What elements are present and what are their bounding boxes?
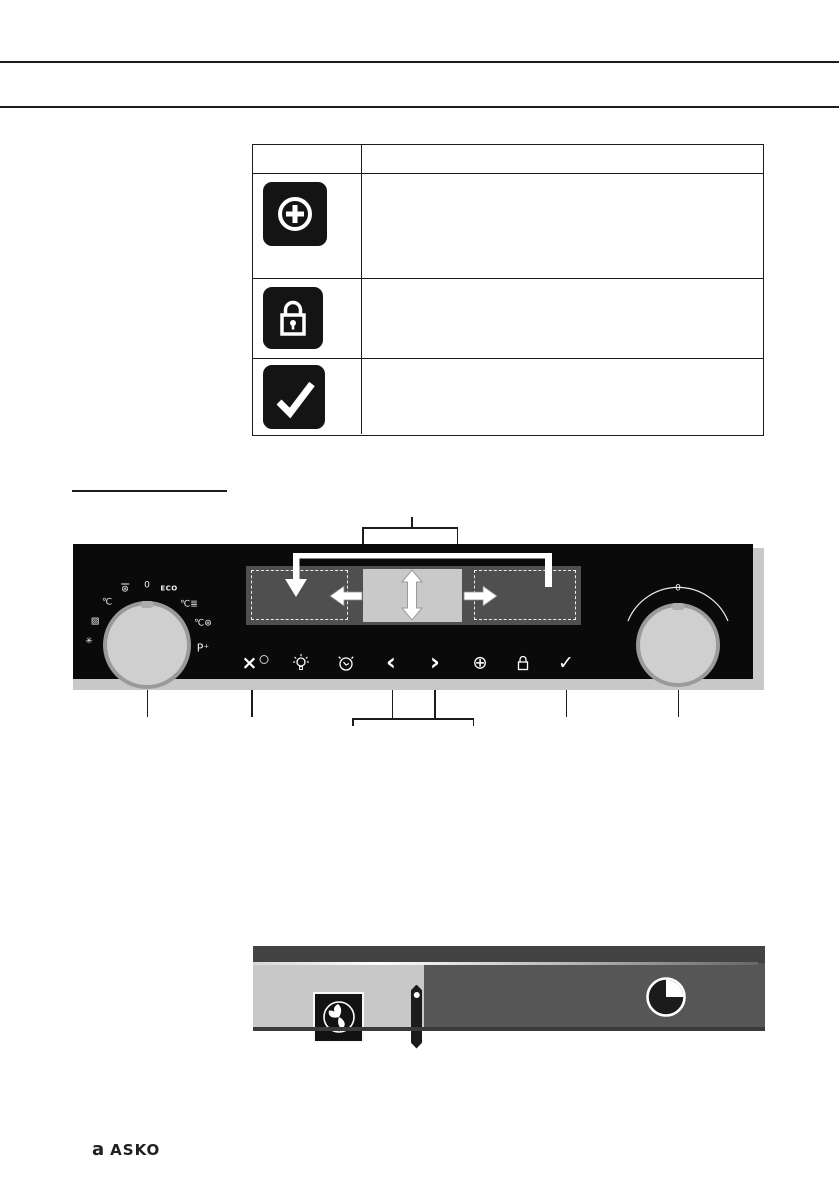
callout-bracket-leg xyxy=(457,527,459,544)
display-navigation-arrows xyxy=(240,548,600,628)
hot-air-levels-symbol: ℃≣ xyxy=(180,601,198,610)
temp-symbol: ℃ xyxy=(102,599,112,608)
callout-bracket-bottom xyxy=(352,718,474,720)
right-knob-zero-label: 0 xyxy=(675,585,681,594)
key-description-table xyxy=(252,144,764,436)
display-bottom-edge xyxy=(253,1027,765,1032)
chevron-right-icon: › xyxy=(430,652,440,672)
table-row-icon-cell xyxy=(253,278,361,358)
lock-button[interactable] xyxy=(515,654,531,672)
confirm-button[interactable]: ✓ xyxy=(558,652,574,674)
selection-slider[interactable] xyxy=(411,985,422,1049)
chevron-left-icon: ‹ xyxy=(386,652,396,672)
grill-pan-symbol: ▨ xyxy=(91,618,100,627)
fan-temp-symbol: ℃⊛ xyxy=(194,620,212,629)
asko-wordmark: ASKO xyxy=(110,1141,160,1159)
callout-power xyxy=(251,690,253,717)
oven-display-bar xyxy=(253,946,765,1031)
check-icon: ✓ xyxy=(558,652,574,674)
program-plus-symbol: P⁺ xyxy=(197,644,209,653)
callout-bracket-leg xyxy=(362,527,364,544)
defrost-symbol: ✳ xyxy=(85,638,93,647)
standby-icon xyxy=(259,655,268,664)
asko-logo-mark: a xyxy=(92,1141,104,1159)
table-row-icon-cell xyxy=(253,358,361,434)
power-x-icon: × xyxy=(242,655,258,671)
callout-left-knob xyxy=(147,690,149,717)
function-knob[interactable] xyxy=(103,601,191,689)
callout-bracket-top xyxy=(362,527,458,529)
minute-minder-button[interactable] xyxy=(336,653,356,673)
callout-next xyxy=(434,690,436,718)
timer-quarter-icon xyxy=(645,976,687,1018)
fan-function-tile xyxy=(313,992,364,1043)
next-button[interactable]: › xyxy=(430,652,440,672)
knob-off-label: 0 xyxy=(144,582,150,591)
callout-right-knob xyxy=(678,690,680,717)
display-top-strip xyxy=(253,946,765,963)
table-header-cell xyxy=(253,145,361,173)
callout-confirm xyxy=(566,690,568,717)
display-function-area xyxy=(253,965,424,1027)
callout-stub xyxy=(411,517,413,527)
top-rule-2 xyxy=(0,106,839,108)
eco-symbol: ECO xyxy=(160,585,177,594)
plus-circle-icon: ⊕ xyxy=(472,653,487,674)
previous-button[interactable]: ‹ xyxy=(386,652,396,672)
light-button[interactable] xyxy=(291,653,311,673)
grill-fan-symbol: ⊛ xyxy=(121,584,129,595)
table-row-icon-cell xyxy=(253,173,361,278)
table-row-text-cell xyxy=(361,173,763,278)
light-icon xyxy=(291,653,311,673)
table-row-text-cell xyxy=(361,278,763,358)
knob-pointer xyxy=(141,601,154,608)
panel-trim-right xyxy=(753,548,764,679)
table-row-text-cell xyxy=(361,358,763,434)
callout-bracket-leg xyxy=(352,718,354,726)
timer-knob[interactable] xyxy=(636,603,720,687)
lock-icon xyxy=(515,654,531,672)
power-button[interactable]: × xyxy=(242,655,269,671)
section-heading-underline xyxy=(72,490,227,492)
manual-page: ⊛ 0 ECO ℃≣ ℃⊛ P⁺ ℃ ▨ ✳ 0 × xyxy=(0,0,839,1191)
callout-bracket-leg xyxy=(473,718,475,726)
alarm-clock-icon xyxy=(336,653,356,673)
brand-logo: a ASKO xyxy=(92,1141,160,1159)
fan-icon xyxy=(319,997,359,1037)
knob-pointer xyxy=(672,603,685,610)
table-header-cell xyxy=(361,145,763,173)
lock-key-icon xyxy=(263,287,323,349)
confirm-key-icon xyxy=(263,365,325,429)
callout-prev xyxy=(392,690,394,718)
plus-circle-key-icon xyxy=(263,182,327,246)
top-rule-1 xyxy=(0,61,839,63)
slider-dot xyxy=(413,992,420,999)
display-timer-area xyxy=(424,965,765,1027)
extra-functions-button[interactable]: ⊕ xyxy=(472,653,487,674)
